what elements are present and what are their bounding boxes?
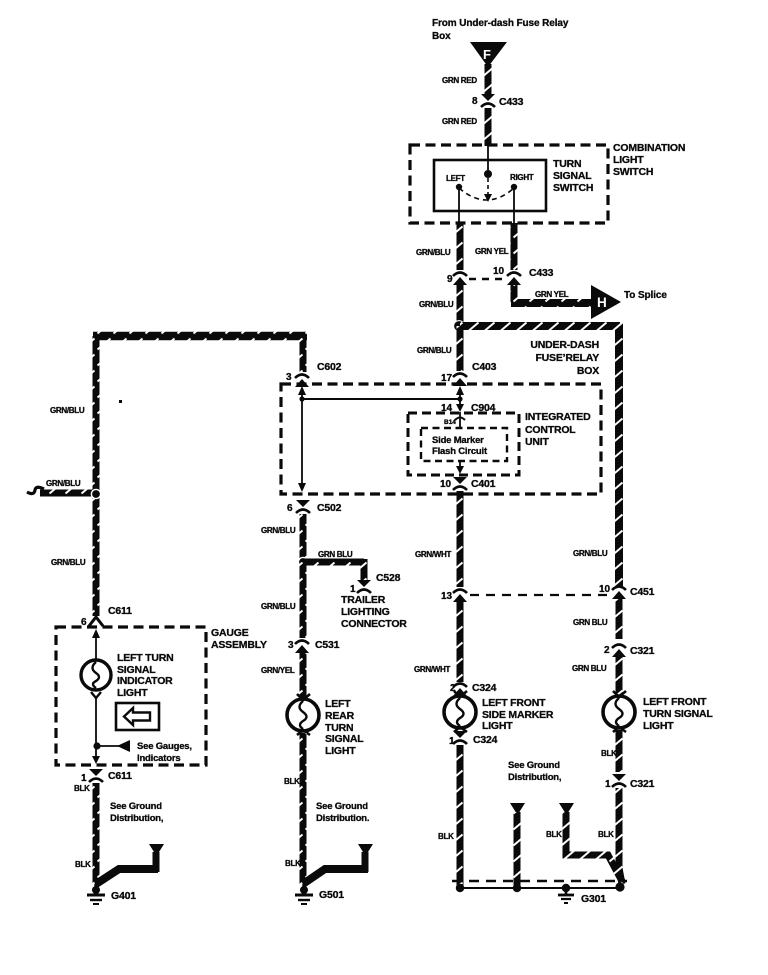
svg-text:TURN: TURN	[553, 158, 581, 170]
svg-text:TRAILER: TRAILER	[341, 594, 386, 606]
svg-text:C531: C531	[315, 639, 340, 651]
svg-text:F: F	[483, 47, 491, 62]
svg-text:LIGHT: LIGHT	[643, 720, 674, 732]
svg-text:SWITCH: SWITCH	[613, 166, 653, 178]
svg-text:SIGNAL: SIGNAL	[325, 733, 364, 745]
svg-text:CONNECTOR: CONNECTOR	[341, 618, 407, 630]
svg-text:6: 6	[81, 617, 87, 628]
svg-text:SWITCH: SWITCH	[553, 182, 593, 194]
svg-text:BLK: BLK	[546, 830, 562, 839]
svg-text:GRN/BLU: GRN/BLU	[416, 248, 451, 257]
svg-text:GRN BLU: GRN BLU	[318, 550, 353, 559]
svg-text:BLK: BLK	[74, 784, 90, 793]
svg-text:C324: C324	[473, 734, 498, 746]
svg-text:LEFT FRONT: LEFT FRONT	[643, 696, 707, 708]
svg-text:GRN/BLU: GRN/BLU	[573, 549, 608, 558]
svg-text:INDICATOR: INDICATOR	[117, 675, 173, 687]
svg-text:GRN/YEL: GRN/YEL	[261, 666, 295, 675]
svg-text:GRN/BLU: GRN/BLU	[419, 300, 454, 309]
svg-text:See Ground: See Ground	[316, 801, 368, 812]
svg-text:C321: C321	[630, 778, 655, 790]
svg-text:GRN/BLU: GRN/BLU	[50, 406, 85, 415]
svg-text:ASSEMBLY: ASSEMBLY	[211, 639, 267, 651]
svg-text:See Gauges,: See Gauges,	[137, 741, 192, 752]
svg-text:CONTROL: CONTROL	[525, 424, 576, 436]
svg-text:C602: C602	[317, 361, 342, 373]
svg-text:17: 17	[441, 373, 453, 384]
svg-text:LIGHT: LIGHT	[482, 720, 513, 732]
svg-text:GRN/BLU: GRN/BLU	[261, 602, 296, 611]
svg-text:SIGNAL: SIGNAL	[553, 170, 592, 182]
svg-text:GRN YEL: GRN YEL	[535, 290, 569, 299]
svg-text:LEFT TURN: LEFT TURN	[117, 652, 174, 664]
svg-text:LIGHTING: LIGHTING	[341, 606, 390, 618]
svg-text:Distribution,: Distribution,	[508, 772, 561, 783]
svg-text:GRN/BLU: GRN/BLU	[46, 479, 81, 488]
svg-text:BLK: BLK	[601, 749, 617, 758]
svg-text:LEFT FRONT: LEFT FRONT	[482, 697, 546, 709]
svg-text:LIGHT: LIGHT	[325, 745, 356, 757]
svg-text:9: 9	[447, 274, 453, 285]
svg-text:BLK: BLK	[75, 860, 91, 869]
svg-text:Distribution.: Distribution.	[316, 813, 369, 824]
svg-text:LIGHT: LIGHT	[117, 687, 148, 699]
svg-text:G501: G501	[319, 889, 344, 901]
svg-text:GRN/WHT: GRN/WHT	[415, 550, 452, 559]
svg-text:10: 10	[493, 266, 505, 277]
svg-text:UNIT: UNIT	[525, 436, 549, 448]
svg-text:GAUGE: GAUGE	[211, 627, 249, 639]
svg-text:To Splice: To Splice	[624, 290, 667, 301]
svg-text:GRN/BLU: GRN/BLU	[51, 558, 86, 567]
svg-text:C611: C611	[108, 605, 132, 617]
svg-text:GRN RED: GRN RED	[442, 117, 477, 126]
svg-text:COMBINATION: COMBINATION	[613, 142, 685, 154]
svg-text:Flash Circuit: Flash Circuit	[432, 446, 488, 457]
svg-text:GRN/WHT: GRN/WHT	[414, 665, 451, 674]
svg-text:C433: C433	[529, 267, 554, 279]
svg-text:G401: G401	[111, 890, 136, 902]
svg-text:2: 2	[604, 645, 610, 656]
svg-text:BLK: BLK	[285, 859, 301, 868]
svg-text:GRN/BLU: GRN/BLU	[261, 526, 296, 535]
svg-text:Box: Box	[432, 31, 451, 42]
svg-text:See Ground: See Ground	[508, 760, 560, 771]
svg-text:8: 8	[472, 96, 478, 107]
svg-text:C324: C324	[472, 682, 497, 694]
svg-text:LIGHT: LIGHT	[613, 154, 644, 166]
svg-text:C451: C451	[630, 586, 655, 598]
svg-text:C611: C611	[108, 770, 132, 782]
svg-text:GRN YEL: GRN YEL	[475, 247, 509, 256]
svg-text:1: 1	[605, 779, 611, 790]
svg-text:6: 6	[287, 503, 293, 514]
svg-text:REAR: REAR	[325, 710, 355, 722]
svg-text:FUSE’RELAY: FUSE’RELAY	[535, 352, 599, 364]
svg-text:See Ground: See Ground	[110, 801, 162, 812]
svg-text:BOX: BOX	[577, 365, 599, 377]
svg-text:3: 3	[286, 372, 292, 383]
svg-text:1: 1	[81, 773, 87, 784]
svg-text:10: 10	[599, 584, 611, 595]
svg-text:BLK: BLK	[598, 830, 614, 839]
svg-text:LEFT: LEFT	[325, 698, 351, 710]
svg-text:B14: B14	[444, 419, 456, 426]
svg-text:3: 3	[288, 640, 294, 651]
svg-text:BLK: BLK	[284, 777, 300, 786]
svg-text:UNDER-DASH: UNDER-DASH	[530, 339, 599, 351]
svg-text:C433: C433	[499, 96, 524, 108]
svg-text:10: 10	[440, 479, 452, 490]
svg-text:G301: G301	[581, 893, 606, 905]
svg-text:LEFT: LEFT	[446, 174, 465, 183]
svg-text:INTEGRATED: INTEGRATED	[525, 411, 591, 423]
svg-text:Indicators: Indicators	[137, 753, 180, 764]
svg-text:GRN BLU: GRN BLU	[573, 618, 608, 627]
svg-text:C321: C321	[630, 645, 655, 657]
svg-text:C403: C403	[472, 361, 497, 373]
svg-text:From Under-dash Fuse Relay: From Under-dash Fuse Relay	[432, 18, 569, 29]
svg-text:Distribution,: Distribution,	[110, 813, 163, 824]
svg-text:RIGHT: RIGHT	[510, 173, 534, 182]
svg-text:TURN SIGNAL: TURN SIGNAL	[643, 708, 713, 720]
svg-text:C528: C528	[376, 572, 401, 584]
svg-text:H: H	[597, 295, 607, 310]
svg-text:13: 13	[441, 591, 453, 602]
svg-text:BLK: BLK	[438, 832, 454, 841]
svg-text:C502: C502	[317, 502, 342, 514]
svg-text:GRN BLU: GRN BLU	[572, 664, 607, 673]
svg-text:C401: C401	[471, 478, 496, 490]
svg-text:GRN RED: GRN RED	[442, 76, 477, 85]
svg-text:Side Marker: Side Marker	[432, 435, 484, 446]
svg-text:GRN/BLU: GRN/BLU	[417, 346, 452, 355]
